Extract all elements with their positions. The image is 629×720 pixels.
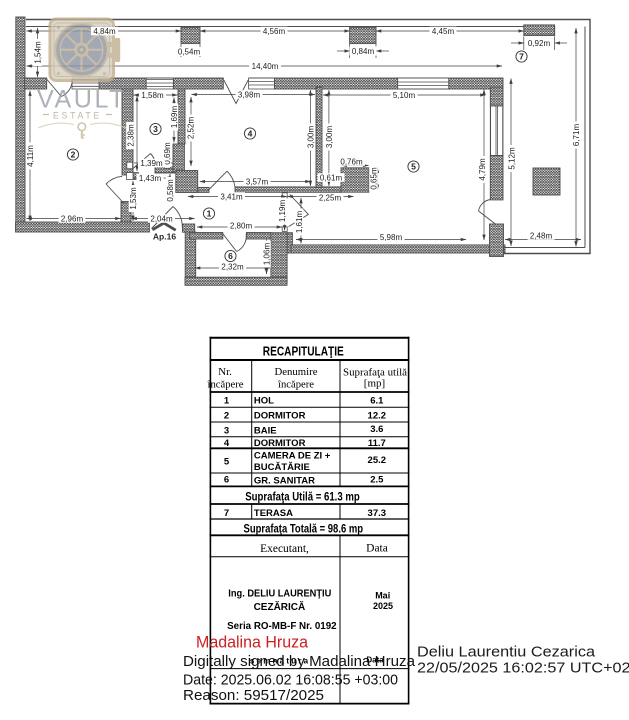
svg-text:3,00m: 3,00m [307, 126, 316, 149]
svg-text:CEZĂRICĂ: CEZĂRICĂ [254, 600, 306, 613]
svg-text:12.2: 12.2 [368, 411, 387, 422]
svg-text:1,19m: 1,19m [278, 200, 287, 223]
svg-text:VAULT: VAULT [37, 86, 127, 114]
svg-text:Data: Data [366, 543, 388, 555]
svg-text:2,04m: 2,04m [150, 215, 173, 224]
svg-text:Seria RO-MB-F Nr. 0192: Seria RO-MB-F Nr. 0192 [227, 621, 337, 632]
svg-text:5: 5 [411, 161, 416, 171]
svg-text:3,00m: 3,00m [325, 126, 334, 149]
svg-text:1,61m: 1,61m [295, 211, 304, 234]
svg-text:1: 1 [207, 208, 212, 218]
svg-text:1,43m: 1,43m [139, 174, 162, 183]
svg-text:3: 3 [153, 124, 158, 134]
svg-text:2.5: 2.5 [370, 475, 384, 486]
svg-text:6: 6 [224, 475, 229, 486]
svg-text:5,12m: 5,12m [508, 147, 517, 170]
svg-text:4: 4 [248, 128, 253, 138]
svg-text:0,58m: 0,58m [166, 179, 175, 202]
svg-text:Suprafaţa Totală = 98.6 mp: Suprafaţa Totală = 98.6 mp [244, 524, 364, 536]
svg-text:Madalina Hruza: Madalina Hruza [196, 634, 308, 652]
svg-text:Digitally signed by Madalina H: Digitally signed by Madalina Hruza [183, 654, 416, 670]
svg-text:0,61m: 0,61m [320, 174, 343, 183]
svg-text:7: 7 [519, 51, 524, 61]
svg-text:0,76m: 0,76m [340, 158, 363, 167]
svg-text:2025: 2025 [373, 601, 393, 611]
svg-text:1: 1 [224, 396, 230, 407]
svg-text:4,11m: 4,11m [26, 145, 35, 167]
svg-text:5,98m: 5,98m [380, 233, 403, 242]
svg-text:Denumire: Denumire [275, 366, 318, 378]
svg-text:TERASA: TERASA [254, 508, 293, 519]
svg-text:BUCĂTĂRIE: BUCĂTĂRIE [254, 462, 310, 473]
svg-text:0,84m: 0,84m [352, 47, 375, 56]
svg-text:DORMITOR: DORMITOR [254, 411, 306, 422]
svg-text:4,84m: 4,84m [93, 27, 116, 36]
svg-text:1,69m: 1,69m [170, 106, 179, 129]
svg-text:3.6: 3.6 [370, 424, 383, 435]
svg-text:1,39m: 1,39m [140, 159, 163, 168]
svg-text:GR. SANITAR: GR. SANITAR [254, 476, 315, 487]
svg-text:3,41m: 3,41m [220, 193, 243, 202]
svg-text:14,40m: 14,40m [252, 62, 279, 71]
svg-text:0,65m: 0,65m [370, 167, 379, 190]
svg-text:Ing. DELIU LAURENŢIU: Ing. DELIU LAURENŢIU [228, 588, 331, 599]
svg-text:Ap.16: Ap.16 [153, 232, 176, 242]
svg-text:HOL: HOL [254, 396, 274, 407]
svg-text:4,45m: 4,45m [432, 27, 455, 36]
svg-text:Mai: Mai [375, 590, 390, 600]
svg-text:încăpere: încăpere [277, 379, 314, 391]
svg-text:5,10m: 5,10m [393, 91, 416, 100]
svg-text:7: 7 [224, 508, 229, 519]
svg-text:1,53m: 1,53m [129, 187, 138, 210]
svg-text:3,98m: 3,98m [238, 91, 261, 100]
svg-text:2,96m: 2,96m [61, 215, 84, 224]
svg-text:2,38m: 2,38m [127, 124, 136, 147]
svg-text:Suprafaţa Utilă = 61.3 mp: Suprafaţa Utilă = 61.3 mp [245, 492, 360, 504]
svg-text:6: 6 [228, 251, 233, 261]
svg-text:[mp]: [mp] [364, 378, 385, 390]
svg-text:0,92m: 0,92m [528, 39, 551, 48]
svg-text:2: 2 [224, 411, 229, 422]
svg-text:6,71m: 6,71m [572, 124, 581, 147]
svg-text:DORMITOR: DORMITOR [254, 438, 306, 449]
svg-text:2,32m: 2,32m [221, 263, 244, 272]
svg-text:CAMERA DE ZI +: CAMERA DE ZI + [254, 451, 331, 462]
svg-text:22/05/2025 16:02:57 UTC+02:00: 22/05/2025 16:02:57 UTC+02:00 [417, 660, 629, 676]
svg-text:3,57m: 3,57m [246, 178, 269, 187]
svg-text:37.3: 37.3 [368, 508, 387, 519]
svg-text:Deliu Laurentiu Cezarica: Deliu Laurentiu Cezarica [417, 644, 596, 660]
svg-text:0,54m: 0,54m [178, 48, 201, 57]
svg-text:2,52m: 2,52m [187, 117, 196, 140]
svg-text:1,58m: 1,58m [141, 91, 164, 100]
svg-text:2: 2 [71, 149, 76, 159]
svg-text:4: 4 [224, 438, 230, 449]
svg-text:încăpere: încăpere [207, 379, 244, 391]
svg-text:1,06m: 1,06m [263, 243, 272, 266]
svg-text:3: 3 [224, 425, 229, 436]
svg-text:2,25m: 2,25m [319, 194, 342, 203]
svg-text:5: 5 [224, 456, 230, 467]
svg-text:Reason: 59517/2025: Reason: 59517/2025 [183, 688, 324, 704]
svg-text:Date: 2025.06.02 16:08:55 +03:: Date: 2025.06.02 16:08:55 +03:00 [183, 672, 398, 688]
svg-text:25.2: 25.2 [368, 455, 387, 466]
svg-text:1,54m: 1,54m [34, 41, 43, 64]
svg-text:Executant,: Executant, [260, 543, 309, 555]
svg-text:ESTATE: ESTATE [53, 110, 102, 121]
svg-text:Nr.: Nr. [218, 366, 232, 378]
svg-text:RECAPITULAŢIE: RECAPITULAŢIE [263, 345, 344, 359]
svg-text:2,80m: 2,80m [230, 222, 253, 231]
svg-text:2,48m: 2,48m [530, 232, 553, 241]
svg-text:BAIE: BAIE [254, 425, 277, 436]
svg-text:11.7: 11.7 [368, 438, 386, 449]
svg-text:6.1: 6.1 [370, 396, 384, 407]
svg-text:4,56m: 4,56m [263, 27, 286, 36]
svg-text:4,79m: 4,79m [478, 158, 487, 181]
